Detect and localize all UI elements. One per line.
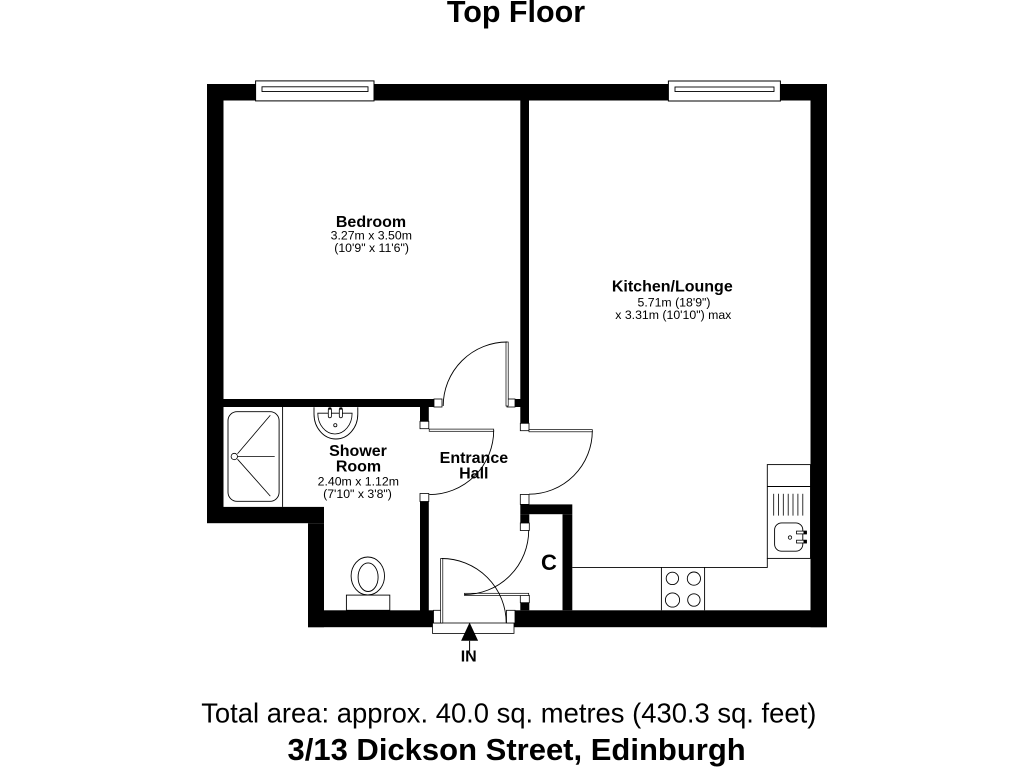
svg-text:Entrance: Entrance — [440, 450, 509, 467]
svg-text:Shower: Shower — [329, 443, 387, 460]
svg-text:IN: IN — [461, 649, 477, 666]
svg-text:(7'10" x 3'8"): (7'10" x 3'8") — [323, 487, 392, 501]
svg-text:x 3.31m (10'10") max: x 3.31m (10'10") max — [615, 308, 732, 322]
svg-text:C: C — [541, 550, 557, 575]
svg-text:(10'9" x 11'6"): (10'9" x 11'6") — [334, 241, 409, 255]
svg-text:Kitchen/Lounge: Kitchen/Lounge — [612, 278, 733, 295]
svg-text:Hall: Hall — [459, 466, 488, 483]
svg-text:Total area: approx. 40.0 sq. m: Total area: approx. 40.0 sq. metres (430… — [201, 698, 816, 729]
svg-text:Room: Room — [336, 458, 381, 475]
svg-text:3/13 Dickson Street, Edinburgh: 3/13 Dickson Street, Edinburgh — [287, 732, 745, 767]
svg-text:Top Floor: Top Floor — [447, 0, 585, 29]
